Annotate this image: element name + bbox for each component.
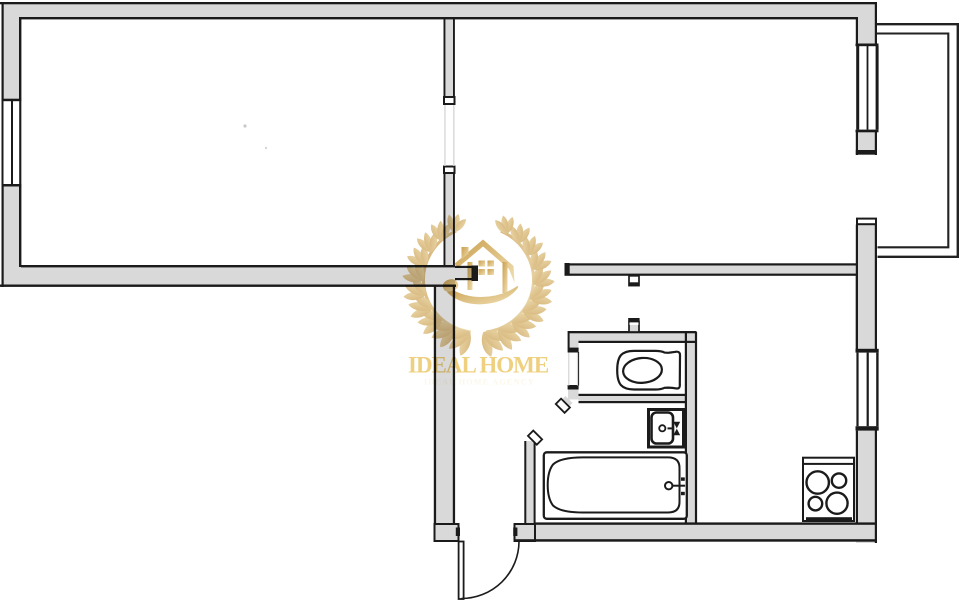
- svg-text:IDEAL HOME AGENCY: IDEAL HOME AGENCY: [424, 378, 535, 387]
- svg-text:IDEAL HOME: IDEAL HOME: [408, 353, 549, 378]
